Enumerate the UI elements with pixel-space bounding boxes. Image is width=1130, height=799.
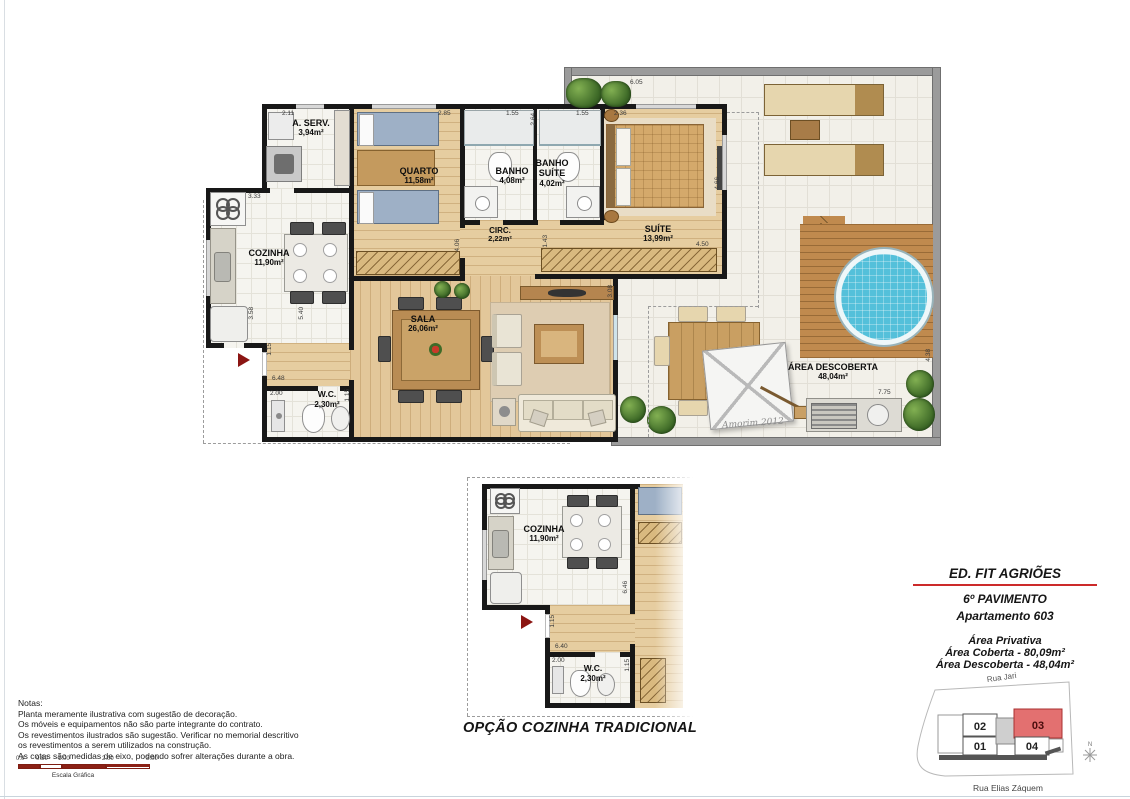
window [372, 104, 436, 109]
chair [290, 291, 314, 304]
plant [566, 78, 602, 108]
unit-04-label: 04 [1026, 741, 1039, 753]
chair [596, 495, 618, 507]
wall [503, 220, 538, 225]
note-line: As cotas são medidas de eixo, podendo so… [18, 751, 398, 762]
area-label: 26,06m² [388, 324, 458, 333]
lounge-chair [764, 84, 884, 116]
projection-line [648, 306, 758, 308]
washer [266, 146, 302, 182]
sofa [518, 394, 616, 432]
plant [434, 281, 451, 298]
window [722, 135, 727, 190]
chair [436, 390, 462, 403]
wall [560, 220, 604, 225]
note-line: Os revestimentos ilustrados são sugestão… [18, 730, 398, 741]
building-outline [938, 715, 965, 753]
dimension-label: 4.06 [455, 239, 462, 252]
entry-arrow-icon [238, 353, 250, 367]
bbq-sink [867, 404, 889, 426]
dimension-label: 3.58 [249, 307, 256, 320]
dimension-label: 2.85 [438, 111, 451, 118]
plant [601, 81, 631, 107]
dimension-label: 1.15 [550, 615, 557, 628]
projection-line [727, 112, 759, 114]
scale-tick: 1.00 [58, 756, 70, 762]
fridge [490, 572, 522, 604]
area-label: 11,90m² [234, 258, 304, 267]
bath-sink [464, 186, 498, 218]
wall [630, 484, 635, 610]
plan-fade [655, 476, 700, 718]
scale-bar: 0.0 0.50 1.00 2.00 3.00 Escala Gráfica [18, 764, 158, 784]
grill [811, 403, 857, 429]
kitchen-sink [214, 252, 231, 282]
plate [323, 269, 337, 283]
plate [598, 514, 611, 527]
fridge [210, 306, 248, 342]
wall [630, 605, 635, 614]
core-box [996, 718, 1016, 744]
unit-02-label: 02 [974, 721, 986, 733]
room-label-sala: SALA26,06m² [388, 314, 458, 334]
window [636, 104, 696, 109]
scale-segment [18, 764, 40, 769]
wall [482, 605, 550, 610]
scale-label: Escala Gráfica [18, 769, 128, 779]
outdoor-chair [678, 306, 708, 322]
chair [567, 495, 589, 507]
unit-03-label: 03 [1032, 720, 1044, 732]
building-name: ED. FIT AGRIÕES [905, 566, 1105, 581]
scale-segment [62, 764, 106, 769]
projection-line [648, 306, 650, 437]
note-line: Planta meramente ilustrativa com sugestã… [18, 709, 398, 720]
chair [322, 291, 346, 304]
wall [460, 220, 480, 225]
wall [350, 276, 464, 281]
tv [548, 289, 586, 297]
chair [378, 336, 391, 362]
dimension-label: 7.75 [878, 390, 891, 397]
street-label-bottom: Rua Elias Záquem [973, 783, 1043, 793]
notes: Notas: Planta meramente ilustrativa com … [18, 698, 398, 761]
room-label-circ: CIRC.2,22m² [470, 226, 530, 244]
dimension-label: 6.40 [555, 644, 568, 651]
wall [535, 274, 727, 279]
shower [539, 110, 601, 146]
dimension-label: 3.33 [248, 194, 261, 201]
bed-single [357, 112, 439, 146]
dimension-label: 1.43 [543, 235, 550, 248]
area-label: 2,22m² [470, 235, 530, 244]
plate [323, 243, 337, 257]
wall [460, 258, 465, 281]
dimension-label: 5.40 [299, 307, 306, 320]
room-label-area-descoberta: ÁREA DESCOBERTA48,04m² [768, 362, 898, 382]
scale-tick: 3.00 [146, 756, 158, 762]
scale-tick: 2.00 [102, 756, 114, 762]
area-covered-value: Área Coberta - 80,09m² [905, 647, 1105, 659]
armchair [492, 352, 522, 386]
nightstand [604, 210, 619, 223]
flowers [429, 343, 442, 356]
title-rule [913, 584, 1097, 586]
wall [545, 703, 635, 708]
wall [262, 437, 618, 442]
terrace-wall-right [933, 68, 940, 445]
dimension-label: 1.15 [345, 389, 352, 402]
outdoor-chair [716, 306, 746, 322]
barbecue-counter [806, 398, 902, 432]
bath-sink [566, 186, 600, 218]
coffee-table [534, 324, 584, 364]
dimension-label: 4.38 [926, 349, 933, 362]
lounge-chair [764, 144, 884, 176]
scale-segment [40, 764, 62, 769]
room-label-suite: SUÍTE13,99m² [626, 224, 690, 244]
wall [206, 343, 224, 348]
dimension-label: 2.36 [614, 111, 627, 118]
entry-door-gap [262, 352, 267, 376]
shower-column [552, 666, 564, 694]
terrace-wall-top [565, 68, 940, 75]
property-line [203, 200, 205, 443]
dimension-label: 4.50 [696, 242, 709, 249]
entry-arrow-icon [521, 615, 533, 629]
street-label-top: Rua Jari [986, 671, 1017, 684]
bed-single [357, 190, 439, 224]
wc-sink [331, 406, 350, 431]
terrace-wall-bottom [612, 438, 940, 445]
dimension-label: 4.66 [715, 177, 722, 190]
dimension-label: 1.15 [625, 659, 632, 672]
plant [620, 396, 646, 423]
title-block: ED. FIT AGRIÕES 6º PAVIMENTO Apartamento… [905, 566, 1105, 671]
chair [436, 297, 462, 310]
outdoor-chair [654, 336, 670, 366]
dimension-label: 2.64 [531, 113, 538, 126]
room-label-aserv: A. SERV.3,94m² [276, 118, 346, 138]
unit-01-label: 01 [974, 741, 986, 753]
wall [294, 188, 354, 193]
projection-line [758, 112, 760, 308]
apartment-label: Apartamento 603 [905, 609, 1105, 623]
area-label: 11,90m² [508, 534, 580, 543]
property-line [467, 478, 469, 716]
dimension-label: 1.55 [506, 111, 519, 118]
area-label: 11,58m² [384, 176, 454, 185]
shower-column [271, 400, 285, 432]
scale-tick: 0.50 [36, 756, 48, 762]
window [482, 530, 487, 580]
notes-heading: Notas: [18, 698, 398, 709]
dimension-label: 6.48 [272, 376, 285, 383]
location-map: 02 03 01 04 Rua Jari Rua Elias Záquem N [905, 668, 1130, 796]
dimension-label: 1.55 [576, 111, 589, 118]
area-private-label: Área Privativa [905, 635, 1105, 647]
terrace-glass-door [613, 315, 618, 360]
location-map-drawing: 02 03 01 04 Rua Jari Rua Elias Záquem N [905, 668, 1130, 796]
outdoor-side-table [790, 120, 820, 140]
dimension-label: 2.11 [282, 111, 294, 118]
area-label: 3,94m² [276, 128, 346, 137]
plant [903, 398, 935, 431]
wall [545, 605, 550, 614]
plant [906, 370, 934, 398]
window [296, 104, 324, 109]
outdoor-chair [678, 400, 708, 416]
scale-tick: 0.0 [16, 756, 24, 762]
note-line: os revestimentos a serem utilizados na c… [18, 740, 398, 751]
dimension-label: 6.46 [623, 581, 630, 594]
dimension-label: 3.08 [608, 285, 615, 298]
dimension-label: 2.00 [270, 391, 283, 398]
scale-segment [106, 764, 150, 769]
area-label: 48,04m² [768, 372, 898, 381]
plate [598, 538, 611, 551]
hall-floor [262, 343, 354, 390]
plant [647, 406, 676, 434]
room-label-quarto: QUARTO11,58m² [384, 166, 454, 186]
note-line: Os móveis e equipamentos não são parte i… [18, 719, 398, 730]
page-border-left [4, 0, 5, 799]
plate [293, 269, 307, 283]
side-table [492, 398, 516, 426]
pool [836, 249, 932, 345]
area-label: 13,99m² [626, 234, 690, 243]
chair [322, 222, 346, 235]
wall [722, 104, 727, 279]
north-indicator [1083, 748, 1097, 762]
room-label-banho-suite: BANHO SUÍTE4,02m² [526, 158, 578, 188]
property-line [203, 443, 570, 445]
chair [290, 222, 314, 235]
room-label-cozinha: COZINHA11,90m² [234, 248, 304, 268]
kitchen-sink [492, 530, 509, 558]
wall [630, 644, 635, 708]
chair [596, 557, 618, 569]
dimension-label: 6.05 [630, 80, 643, 87]
room-label-alt-cozinha: COZINHA11,90m² [508, 524, 580, 544]
shower [464, 110, 534, 146]
dimension-label: 2.00 [552, 658, 565, 665]
stove [210, 192, 246, 226]
north-label: N [1088, 742, 1092, 748]
building-base [939, 755, 1047, 760]
area-label: 4,02m² [526, 179, 578, 188]
armchair [492, 314, 522, 348]
plant [454, 283, 470, 299]
closet-quarto [356, 251, 460, 275]
area-label: 2,30m² [566, 674, 620, 683]
secondary-plan-caption: OPÇÃO COZINHA TRADICIONAL [455, 720, 705, 736]
chair [398, 297, 424, 310]
room-label-alt-wc: W.C.2,30m² [566, 664, 620, 683]
chair [567, 557, 589, 569]
wall [545, 638, 550, 708]
bed-double [606, 124, 704, 208]
page-border-bottom [0, 796, 1130, 797]
closet-suite [541, 248, 717, 272]
dimension-label: 1.15 [267, 343, 274, 356]
floor-plan-sheet: Amorim 2012 A. SERV.3,94m² QUARTO11,58m²… [0, 0, 1130, 799]
chair [398, 390, 424, 403]
floor-label: 6º PAVIMENTO [905, 592, 1105, 606]
stove [490, 488, 520, 514]
